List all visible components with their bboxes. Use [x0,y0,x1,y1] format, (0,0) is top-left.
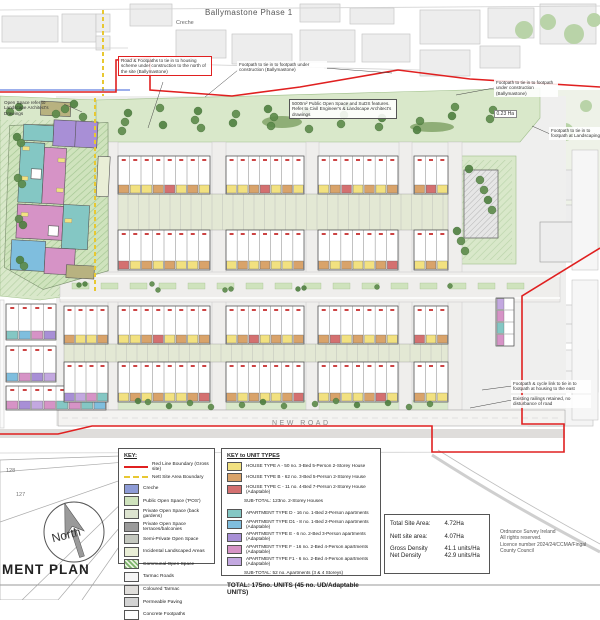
street-verge [246,283,263,289]
unit-number-mark [274,309,278,311]
unit-chip [497,323,504,333]
tree [229,287,234,292]
unit-chip [353,185,363,193]
unit-chip [199,335,209,343]
unit-number-mark [356,233,360,235]
unit-number-mark [122,309,126,311]
plot-number: 127 [16,492,25,498]
tree [118,127,126,135]
unit-number-mark [345,233,349,235]
legend-line-item: Red Line Boundary (Gross site) [124,462,209,472]
unit-number-mark [379,309,383,311]
unit-chip [165,335,175,343]
site-table-row: Gross Density41.1 units/Ha [390,546,484,553]
site-areas-rows: Total Site Area:4.72HaNett site area:4.0… [390,521,484,559]
tree [121,118,129,126]
tree [156,104,164,112]
tree [156,288,161,293]
unit-chip [87,393,96,401]
unit-number-mark [379,365,383,367]
unit-chip [32,401,43,409]
unit-chip [437,261,447,269]
legend-item: Permeable Paving [124,597,209,607]
unit-number-mark [48,307,52,309]
annotation-footpath-landscape: Footpath to tie in to footpath at Landsc… [549,127,600,140]
tree [354,402,360,408]
unit-number-mark [179,365,183,367]
tree [194,107,202,115]
unit-type-label: APARTMENT TYPE E - 6 no. 2-Bed 3-Person … [246,532,375,542]
legend-swatch [124,597,139,607]
unit-number-mark [168,365,172,367]
unit-chip [376,335,386,343]
unit-number-mark [35,307,39,309]
unit-number-mark [333,309,337,311]
legend-swatch [124,559,139,569]
unit-number-mark [263,365,267,367]
site-table-row: Total Site Area:4.72Ha [390,521,484,528]
unit-chip [294,185,304,193]
unit-chip [19,373,30,381]
unit-number-mark [333,159,337,161]
tree [281,403,287,409]
unit-chip [142,261,152,269]
unit-type-row: APARTMENT TYPE F1 - 6 no. 2-Bed 4-Person… [227,557,375,567]
unit-type-label: APARTMENT TYPE D1 - 8 no. 1-Bed 2-Person… [246,520,375,530]
unit-chip [342,335,352,343]
tree [385,400,391,406]
north-arrow-icon: North [36,494,112,570]
tree [197,124,205,132]
street-verge [420,283,437,289]
tree [19,221,27,229]
unit-chip [227,185,237,193]
unit-chip [227,335,237,343]
unit-chip [32,331,43,339]
tree [208,404,214,410]
street-verge [333,283,350,289]
unit-number-mark [23,349,27,351]
unit-number-mark [48,389,52,391]
unit-chip [65,393,74,401]
unit-number-mark [429,365,433,367]
tree [406,404,412,410]
unit-number-mark [101,365,105,367]
unit-chip [238,335,248,343]
site-table-value: 4.72Ha [445,521,484,528]
unit-chip [249,393,259,401]
tree [448,112,456,120]
unit-number-mark [367,233,371,235]
legend-line-item: Nett Site Area Boundary [124,475,209,480]
unit-number-mark [191,233,195,235]
unit-number-mark [296,365,300,367]
tree [150,282,155,287]
unit-chip [44,331,55,339]
legend-item-label: Communal Open Space [143,562,194,567]
unit-chip [199,393,209,401]
tree [232,110,240,118]
unit-number-mark [79,365,83,367]
unit-chip [342,393,352,401]
unit-chip [319,393,329,401]
unit-chip [271,261,281,269]
unit-number-mark [179,159,183,161]
development-plan-sheet: { "labels": { "phase": "Ballymastone Pha… [0,0,600,600]
unit-number-mark [191,309,195,311]
tree [333,398,339,404]
tree [17,139,25,147]
site-table-row: Nett site area:4.07Ha [390,534,484,541]
unit-type-swatch [227,473,242,482]
unit-number-mark [322,159,326,161]
legend-item-label: Coloured Tarmac [143,587,179,592]
site-table-value: 42.9 units/Ha [445,553,484,560]
unit-chip [130,335,140,343]
legend-key-panel: KEY: Red Line Boundary (Gross site)Nett … [118,448,215,564]
unit-chip [376,261,386,269]
unit-chip [283,393,293,401]
unit-number-mark [285,159,289,161]
unit-chip [44,401,55,409]
tree [18,180,26,188]
annotation-footpath-top: Footpath to tie in to footpath under con… [237,61,327,74]
unit-chip [199,185,209,193]
copyright-line: County Council [500,548,598,554]
unit-type-row: HOUSE TYPE B - 62 no. 3-Bed 5-Person 2-S… [227,473,375,482]
unit-chip [415,393,425,401]
unit-number-mark [296,159,300,161]
legend-item: Private Open Space (back gardens) [124,509,209,519]
tree [83,282,88,287]
street-verge [478,283,495,289]
unit-number-mark [230,309,234,311]
legend-item-label: Incidental Landscaped Areas [143,549,205,554]
tree [375,285,380,290]
site-table-label: Gross Density [390,546,445,553]
unit-number-mark [101,309,105,311]
unit-chip [376,185,386,193]
legend-house-types: HOUSE TYPE A - 50 no. 3-Bed 5-Person 2-S… [227,462,375,495]
unit-chip [165,261,175,269]
unit-number-mark [241,309,245,311]
unit-number-mark [10,349,14,351]
unit-type-label: HOUSE TYPE B - 62 no. 3-Bed 5-Person 2-S… [246,475,366,480]
site-areas-table: Total Site Area:4.72HaNett site area:4.0… [384,514,490,574]
unit-number-mark [202,365,206,367]
tree [375,123,383,131]
unit-chip [7,401,18,409]
tree [337,120,345,128]
unit-number-mark [145,309,149,311]
unit-chip [165,393,175,401]
unit-chip [294,335,304,343]
unit-type-label: HOUSE TYPE A - 50 no. 3-Bed 5-Person 2-S… [246,464,365,469]
unit-chip [437,185,447,193]
unit-chip [260,185,270,193]
unit-number-mark [145,233,149,235]
unit-number-mark [252,159,256,161]
legend-swatch [124,547,139,557]
tree [145,399,151,405]
unit-chip [7,373,18,381]
legend-item: Semi-Private Open Space [124,534,209,544]
legend-item-label: Private Open Space terraces/balconies [143,522,209,532]
unit-chip [188,185,198,193]
street-verge [188,283,205,289]
unit-chip [238,393,248,401]
unit-chip [271,393,281,401]
unit-chip [365,185,375,193]
unit-chip [130,261,140,269]
unit-number-mark [202,233,206,235]
unit-chip [319,335,329,343]
unit-number-mark [333,365,337,367]
unit-number-mark [122,365,126,367]
unit-chip [7,331,18,339]
street-verge [159,283,176,289]
unit-type-swatch [227,545,242,554]
unit-chip [153,185,163,193]
legend-swatch [124,509,139,519]
tree [461,247,469,255]
legend-units-title: KEY to UNIT TYPES [227,453,375,459]
unit-chip [342,185,352,193]
unit-number-mark [133,365,137,367]
unit-chip [437,393,447,401]
unit-chip [153,393,163,401]
unit-chip [294,393,304,401]
unit-number-mark [145,365,149,367]
tree [270,113,278,121]
unit-number-mark [156,233,160,235]
north-compass: North [36,494,112,570]
context-west-plots [0,300,4,428]
unit-number-mark [274,365,278,367]
unit-type-swatch [227,520,242,529]
legend-item: Public Open Space ('POS') [124,496,209,506]
annotation-road-footpaths: Road & Footpaths to tie in to housing sc… [118,56,212,76]
legend-item: Communal Open Space [124,559,209,569]
unit-chip [330,335,340,343]
unit-number-mark [10,389,14,391]
unit-type-label: APARTMENT TYPE F - 16 no. 2-Bed 4-Person… [246,545,375,555]
unit-number-mark [122,233,126,235]
unit-chip [283,185,293,193]
tree [77,283,82,288]
tree [453,227,461,235]
unit-number-mark [252,365,256,367]
tree [239,402,245,408]
unit-number-mark [429,233,433,235]
total-units: TOTAL: 175no. UNITS (45 no. UD/Adaptable… [227,582,375,596]
drawing-title-partial: MENT PLAN [2,562,90,577]
site-table-row: Net Density42.9 units/Ha [390,553,484,560]
unit-number-mark [418,365,422,367]
tree [302,286,307,291]
street-verge [507,283,524,289]
unit-chip [271,185,281,193]
unit-chip [249,185,259,193]
tree [166,403,172,409]
unit-number-mark [23,307,27,309]
legend-key-title: KEY: [124,453,209,459]
unit-number-mark [90,365,94,367]
unit-chip [176,185,186,193]
unit-chip [283,261,293,269]
unit-chip [319,185,329,193]
unit-number-mark [156,365,160,367]
tree [484,196,492,204]
legend-item-label: Tarmac Roads [143,574,174,579]
unit-number-mark [345,365,349,367]
legend-item: Creche [124,484,209,494]
street-verge [130,283,147,289]
unit-chip [32,373,43,381]
tree [457,237,465,245]
unit-chip [365,335,375,343]
unit-type-label: APARTMENT TYPE F1 - 6 no. 2-Bed 4-Person… [246,557,375,567]
unit-number-mark [230,159,234,161]
unit-number-mark [168,233,172,235]
unit-chip [497,335,504,345]
unit-number-mark [168,159,172,161]
unit-type-row: APARTMENT TYPE F - 16 no. 2-Bed 4-Person… [227,545,375,555]
tree [223,288,228,293]
unit-number-mark [191,365,195,367]
legend-swatch [124,484,139,494]
site-table-label: Total Site Area: [390,521,445,528]
unit-chip [119,185,129,193]
unit-number-mark [191,159,195,161]
unit-number-mark [230,233,234,235]
unit-chip [497,311,504,321]
unit-chip [249,261,259,269]
tree [187,400,193,406]
unit-number-mark [285,365,289,367]
unit-chip [353,261,363,269]
unit-number-mark [367,309,371,311]
legend-swatch [124,522,139,532]
unit-chip [227,261,237,269]
unit-number-mark [179,233,183,235]
unit-chip [353,393,363,401]
unit-number-mark [202,159,206,161]
unit-number-mark [263,309,267,311]
unit-number-mark [133,309,137,311]
tree [159,121,167,129]
legend-item-label: Creche [143,486,158,491]
tree [264,105,272,113]
unit-chip [176,393,186,401]
unit-chip [426,185,436,193]
legend-key-line-items: Red Line Boundary (Gross site)Nett Site … [124,462,209,480]
copyright-line: Licence number 2024/24/CCMA/Fingal [500,542,598,548]
unit-number-mark [263,233,267,235]
unit-number-mark [230,365,234,367]
existing-road-band [0,429,565,438]
unit-chip [387,393,397,401]
houses-subtotal: SUB-TOTAL: 123no. 2-Storey Houses [244,498,375,503]
unit-number-mark [285,233,289,235]
annotation-footpath-right: Footpath to tie in to footpath under con… [494,79,558,97]
unit-number-mark [156,159,160,161]
plot-number: 128 [6,468,15,474]
tree [488,206,496,214]
unit-type-row: HOUSE TYPE A - 50 no. 3-Bed 5-Person 2-S… [227,462,375,471]
unit-type-swatch [227,557,242,566]
unit-number-mark [35,349,39,351]
tree [191,116,199,124]
unit-chip [330,185,340,193]
unit-type-label: APARTMENT TYPE D - 16 no. 1-Bed 2-Person… [246,511,369,516]
unit-number-mark [241,159,245,161]
unit-number-mark [390,309,394,311]
unit-number-mark [322,233,326,235]
unit-chip [415,185,425,193]
unit-type-row: APARTMENT TYPE E - 6 no. 2-Bed 3-Person … [227,532,375,542]
unit-chip [119,335,129,343]
tree [476,176,484,184]
unit-number-mark [379,159,383,161]
legend-item: Incidental Landscaped Areas [124,547,209,557]
annotation-open-space-left: Open Space refer to Landscape Architect'… [2,99,68,117]
unit-number-mark [367,159,371,161]
unit-chip [387,261,397,269]
unit-chip [319,261,329,269]
unit-number-mark [379,233,383,235]
unit-number-mark [10,307,14,309]
new-road-label: NEW ROAD [272,420,331,427]
tree [229,119,237,127]
unit-number-mark [23,389,27,391]
creche-label: Creche [176,20,194,26]
tree [70,100,78,108]
legend-key-items: CrechePublic Open Space ('POS')Private O… [124,484,209,620]
tree [135,398,141,404]
legend-swatch [124,572,139,582]
street-verge [391,283,408,289]
unit-number-mark [156,309,160,311]
unit-chip [497,299,504,309]
unit-type-row: APARTMENT TYPE D - 16 no. 1-Bed 2-Person… [227,509,375,518]
unit-number-mark [356,159,360,161]
unit-chip [188,393,198,401]
unit-number-mark [48,349,52,351]
unit-number-mark [390,233,394,235]
unit-chip [19,401,30,409]
unit-chip [426,261,436,269]
unit-chip [238,185,248,193]
annotation-footpath-east: Footpath & cycle link to tie in to footp… [511,380,591,393]
unit-number-mark [390,159,394,161]
legend-apartment-types: APARTMENT TYPE D - 16 no. 1-Bed 2-Person… [227,509,375,567]
street-verge [275,283,292,289]
unit-number-mark [345,159,349,161]
legend-item: Concrete Footpaths [124,610,209,620]
site-table-label: Nett site area: [390,534,445,541]
legend-swatch [124,585,139,595]
unit-chip [426,393,436,401]
site-table-value: 4.07Ha [445,534,484,541]
unit-number-mark [390,365,394,367]
site-table-label: Net Density [390,553,445,560]
legend-swatch [124,534,139,544]
unit-chip [76,393,85,401]
unit-number-mark [145,159,149,161]
tree [448,284,453,289]
unit-chip [199,261,209,269]
